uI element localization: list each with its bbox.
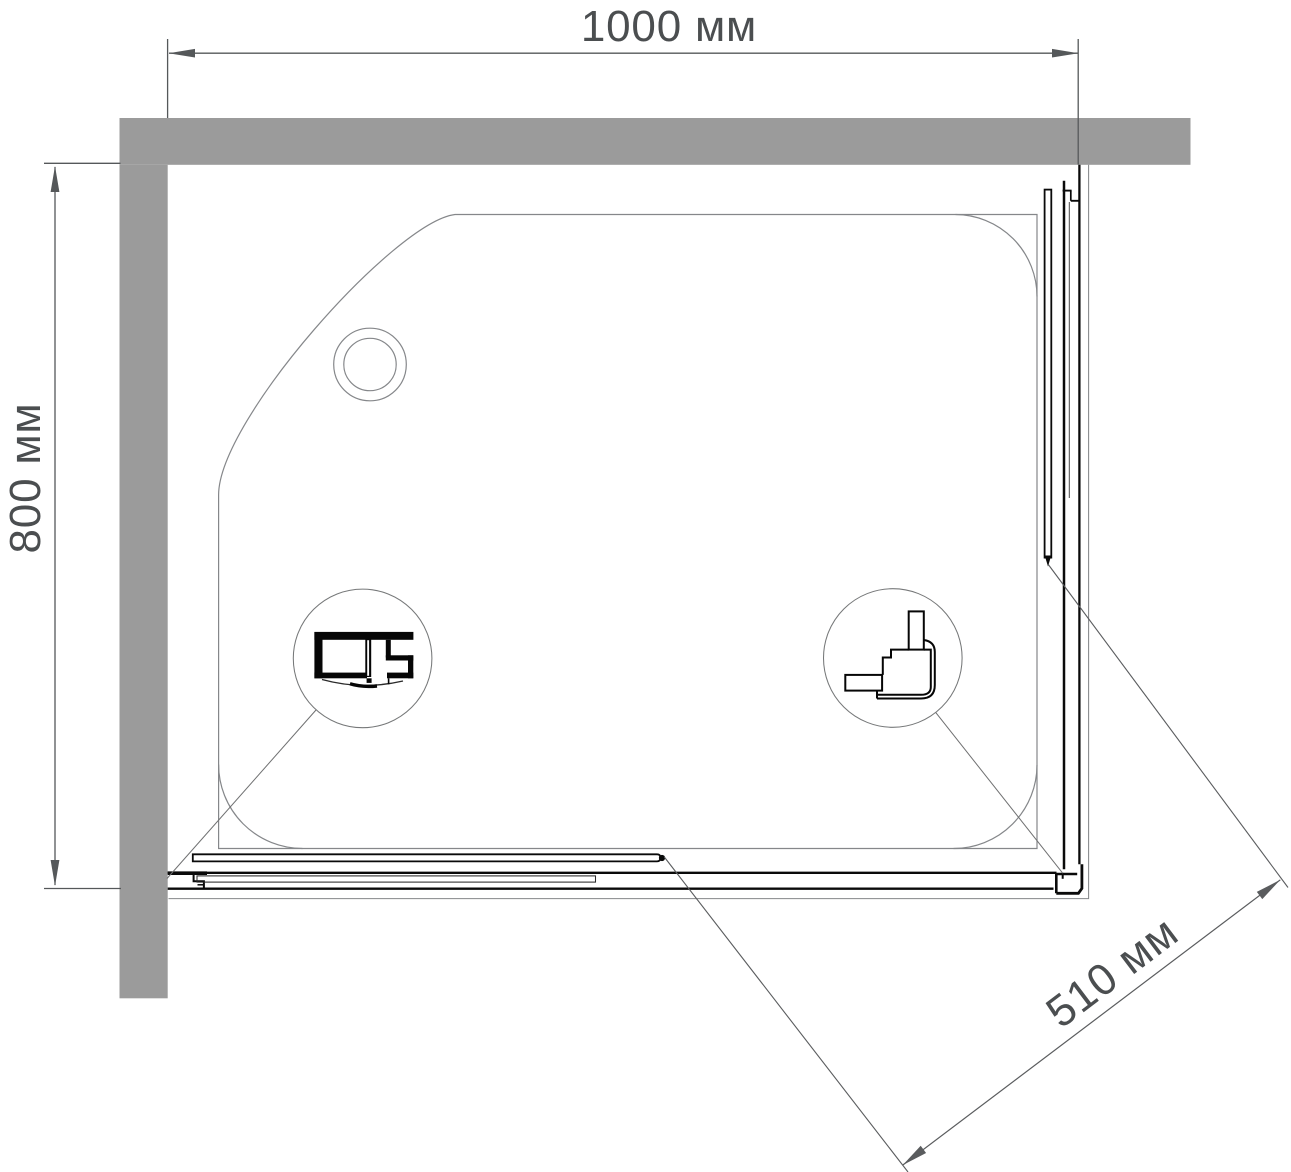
svg-text:800 мм: 800 мм — [1, 403, 50, 554]
svg-text:1000 мм: 1000 мм — [581, 2, 757, 51]
